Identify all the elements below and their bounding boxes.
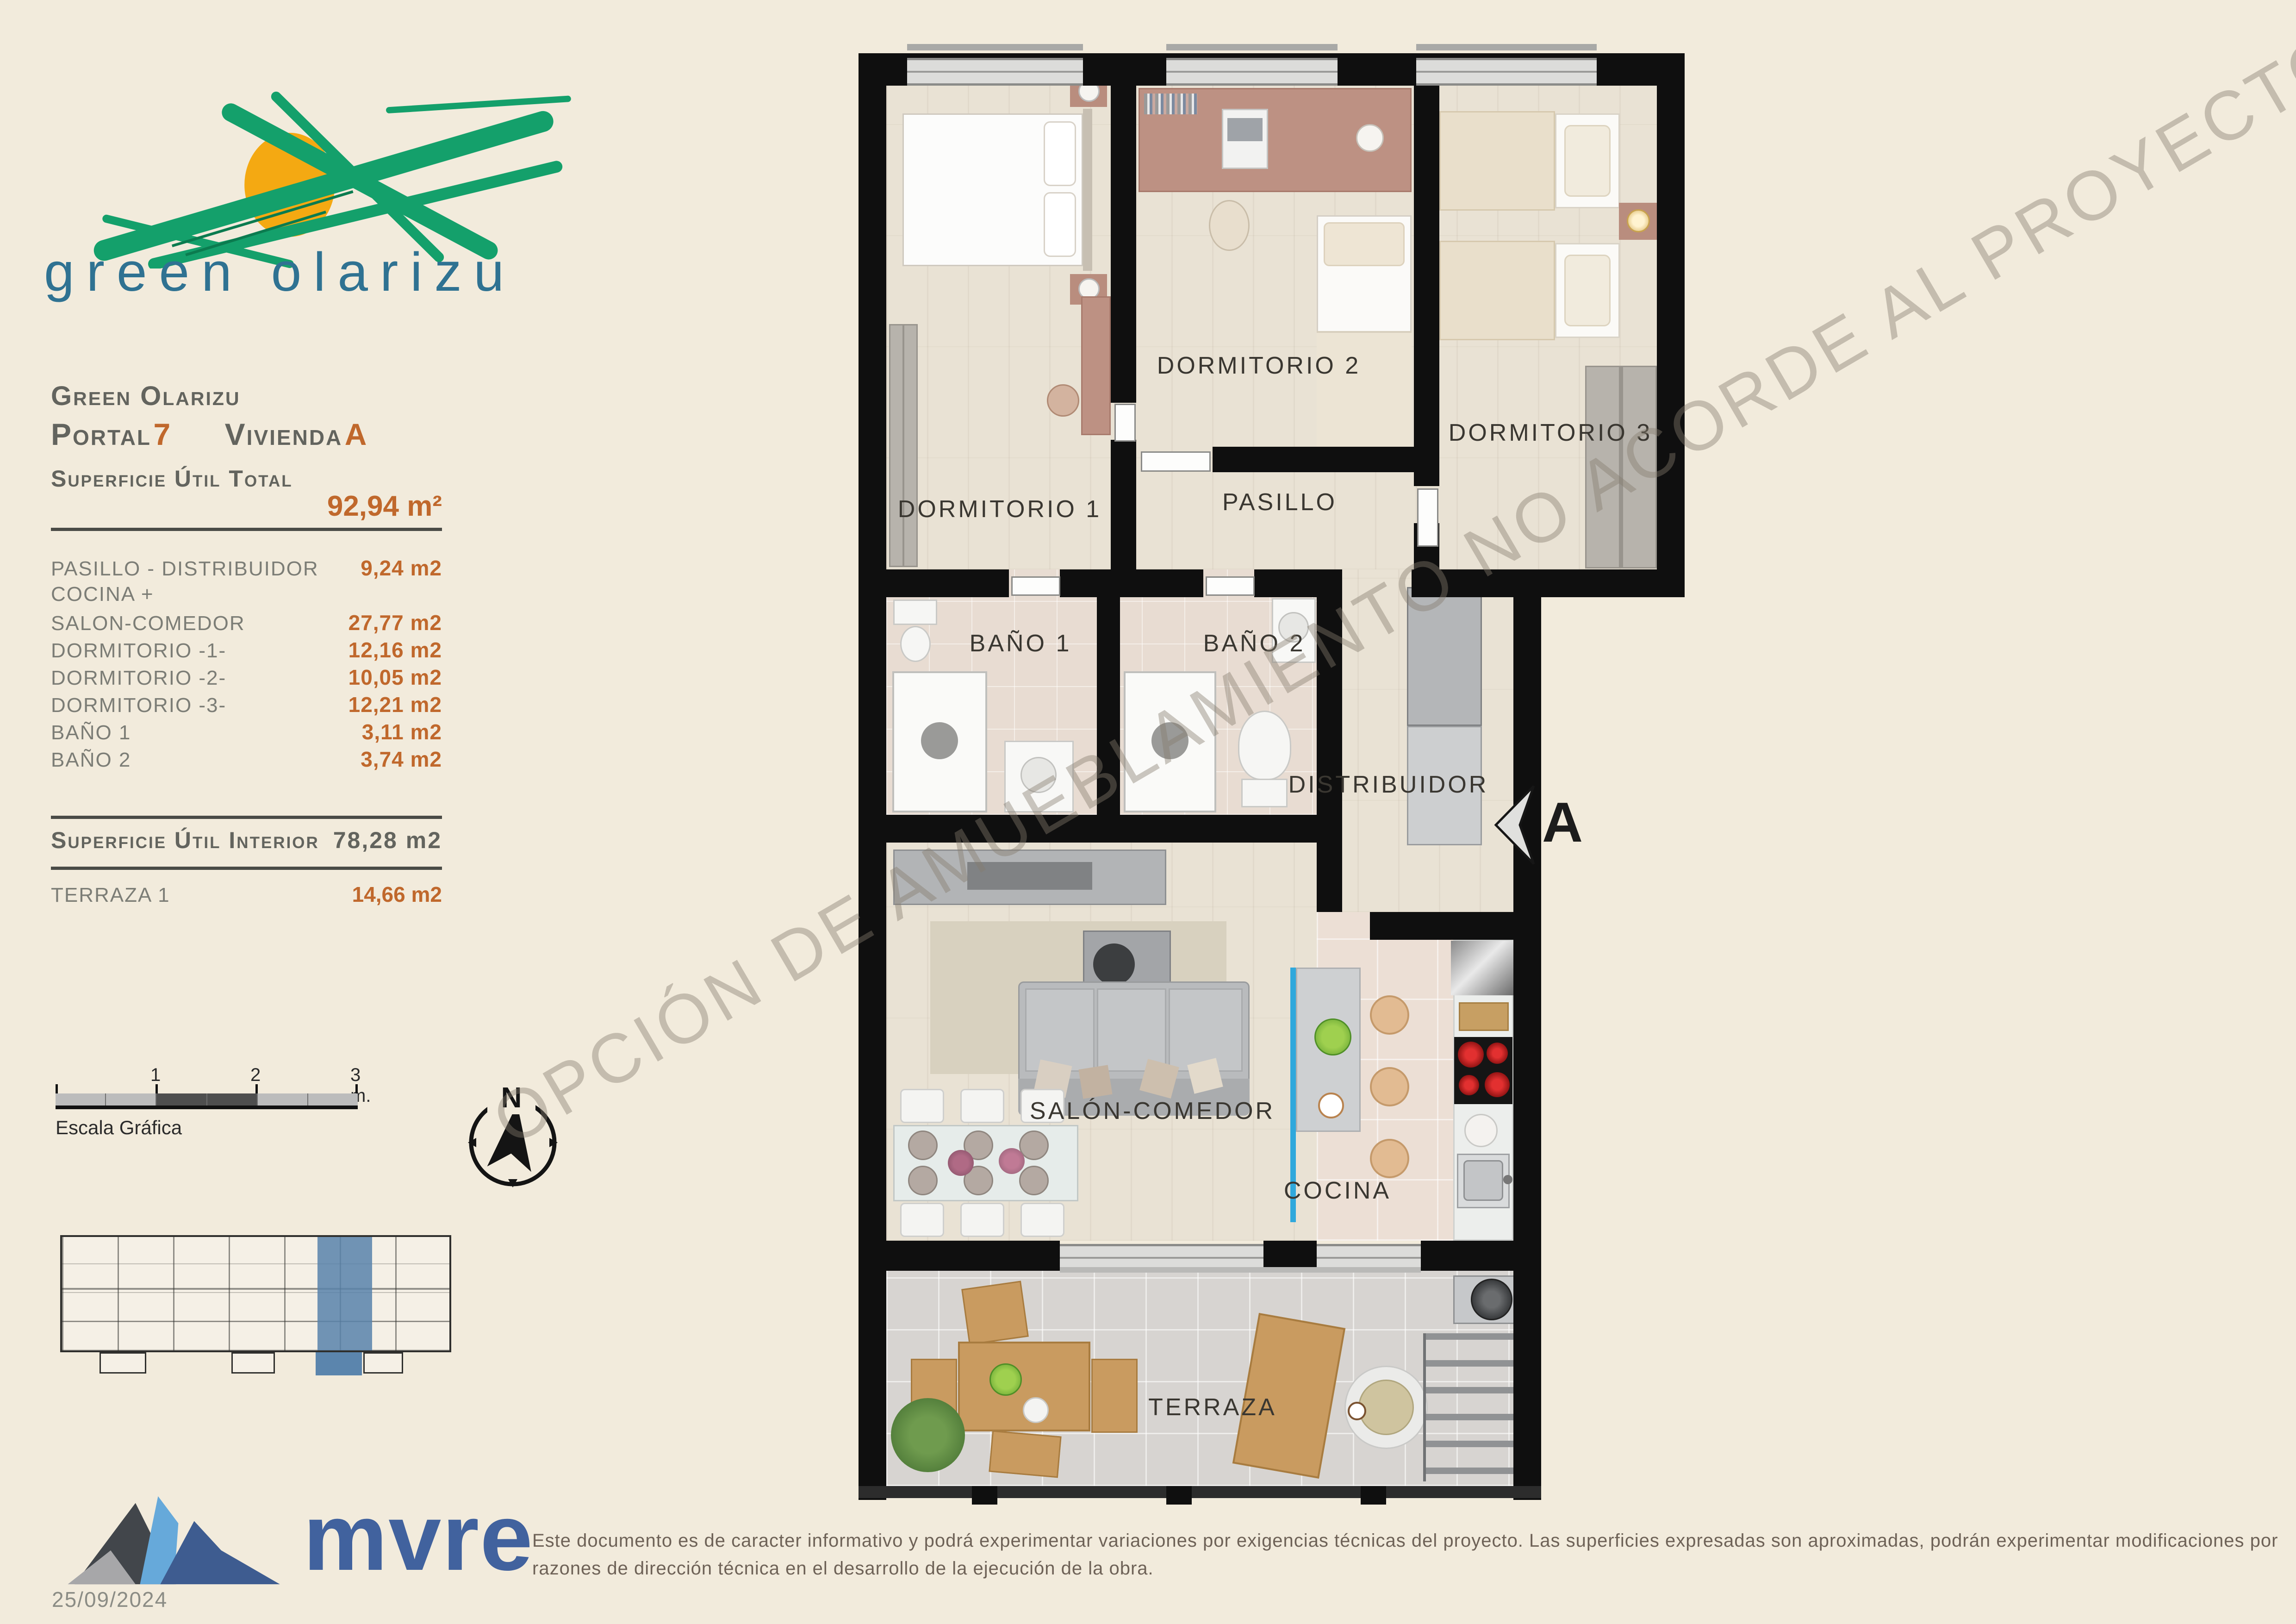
kitchen-sink-basin — [1463, 1160, 1503, 1201]
divider-2 — [51, 816, 442, 819]
divider-3 — [51, 867, 442, 870]
list-item: SALON-COMEDOR27,77 m2 — [51, 610, 442, 637]
overview-midline — [62, 1288, 449, 1290]
door-bano1 — [1011, 576, 1060, 596]
window-dormitorio1 — [907, 58, 1083, 86]
divider-1 — [51, 528, 442, 531]
terraza-label: TERRAZA 1 — [51, 884, 170, 907]
d2-books — [1144, 94, 1197, 114]
vivienda-label: Vivienda — [225, 417, 343, 451]
wall-pasillo-south-a — [859, 569, 1009, 597]
door-dormitorio2 — [1141, 451, 1211, 472]
list-item: BAÑO 23,74 m2 — [51, 747, 442, 774]
d2-pillow — [1324, 222, 1405, 266]
project-title: Green Olarizu — [51, 381, 241, 412]
label-salon-comedor: SALÓN-COMEDOR — [1030, 1097, 1275, 1125]
scale-baseline — [56, 1106, 358, 1109]
d2-lamp — [1356, 124, 1384, 152]
wall-distrib-cocina — [1370, 912, 1513, 940]
list-item: COCINA + — [51, 583, 442, 610]
window-dormitorio3 — [1416, 58, 1597, 86]
wall-terraza-north-a — [859, 1241, 1060, 1271]
total-surface-label: Superficie Útil Total — [51, 465, 293, 492]
kitchen-hood — [1451, 941, 1516, 995]
terrace-chair — [961, 1281, 1029, 1345]
washer-drum — [1471, 1279, 1512, 1320]
door-dormitorio3 — [1417, 488, 1438, 547]
terrace-chair — [1091, 1359, 1138, 1433]
d2-laptop-keys — [1227, 118, 1263, 141]
list-item: DORMITORIO -2-10,05 m2 — [51, 665, 442, 692]
scale-tick-2: 2 — [250, 1065, 261, 1086]
scale-tick-1: 1 — [150, 1065, 161, 1086]
d1-pillow — [1044, 121, 1076, 186]
mvre-logo-icon — [65, 1496, 305, 1587]
terraza-parapet-post — [972, 1486, 997, 1505]
d1-headboard — [1083, 109, 1092, 271]
d1-desk — [1081, 296, 1111, 435]
cutting-board — [1459, 1002, 1509, 1031]
bano1-sink-bowl — [1020, 757, 1057, 793]
terrace-plant — [891, 1398, 965, 1472]
label-dormitorio3: DORMITORIO 3 — [1449, 419, 1652, 447]
d3-bed2-blanket — [1439, 241, 1555, 340]
wall-pasillo-south-b — [1060, 569, 1203, 597]
section-marker-arrow-icon — [1494, 784, 1536, 866]
wall-d1-d2-a — [1111, 86, 1136, 403]
label-pasillo: PASILLO — [1222, 488, 1337, 516]
brand-logo-text: green olarizu — [44, 241, 516, 304]
d3-lamp — [1627, 209, 1650, 232]
terrace-chair — [989, 1430, 1061, 1478]
dining-chair — [960, 1089, 1004, 1123]
burner — [1485, 1072, 1510, 1097]
overview-stair — [100, 1352, 146, 1374]
scale-seg — [106, 1093, 156, 1106]
scale-seg — [207, 1093, 258, 1106]
highlighted-unit — [317, 1237, 372, 1350]
list-item: PASILLO - DISTRIBUIDOR9,24 m2 — [51, 556, 442, 583]
overview-stair — [231, 1352, 275, 1374]
bano1-toilet-tank — [893, 600, 937, 625]
terraza-parapet-post — [1166, 1486, 1192, 1505]
window-dormitorio2 — [1166, 58, 1338, 86]
bano1-shower-drain — [921, 722, 958, 759]
wall-d3-south — [1412, 569, 1685, 597]
wall-d1-d2-b — [1111, 440, 1136, 569]
terraza-parapet-post — [1361, 1486, 1386, 1505]
d1-wardrobe — [889, 324, 918, 567]
overview-midline — [62, 1321, 449, 1322]
d2-blanket — [1317, 331, 1412, 456]
wall-d2-south — [1213, 447, 1414, 472]
terraza-sill — [1060, 1267, 1421, 1273]
d2-chair — [1209, 200, 1250, 251]
section-marker-letter: A — [1542, 790, 1583, 855]
wall-terraza-post — [1263, 1241, 1317, 1271]
unit-title: Portal 7 Vivienda A — [51, 417, 454, 452]
d1-chair — [1047, 384, 1079, 417]
burner — [1487, 1043, 1508, 1064]
d3-wardrobe — [1585, 366, 1657, 568]
wall-terraza-north-b — [1421, 1241, 1541, 1271]
door-bano2 — [1206, 576, 1255, 596]
bar-stool — [1370, 1139, 1409, 1178]
wall-salon-distrib — [1317, 843, 1342, 912]
sofa-cushion — [1078, 1065, 1112, 1099]
door-dormitorio1 — [1114, 404, 1136, 442]
label-bano2: BAÑO 2 — [1203, 630, 1306, 657]
wall-banos-south — [859, 815, 1342, 843]
dining-chair — [900, 1089, 944, 1123]
bar-stool — [1370, 995, 1409, 1035]
d3-bed1-pillow — [1564, 125, 1611, 197]
compass-north-letter: N — [487, 1081, 535, 1114]
burner — [1458, 1042, 1484, 1068]
list-item: DORMITORIO -3-12,21 m2 — [51, 692, 442, 719]
burner — [1459, 1075, 1479, 1095]
document-canvas: green olarizu Green Olarizu Portal 7 Viv… — [0, 0, 2296, 1624]
balcony-rail — [1416, 44, 1597, 50]
wall-right-step — [1513, 569, 1541, 1500]
dining-chair — [1020, 1203, 1064, 1237]
list-item: DORMITORIO -1-12,16 m2 — [51, 637, 442, 665]
sofa-seat — [1025, 988, 1095, 1072]
dining-centerpiece — [948, 1150, 974, 1176]
terrace-cup — [1348, 1402, 1366, 1420]
vivienda-letter: A — [345, 417, 368, 451]
d3-bed1-blanket — [1439, 111, 1555, 211]
wall-d2-d3-a — [1414, 86, 1439, 486]
dining-place — [1019, 1166, 1049, 1195]
island-plate — [1314, 1018, 1351, 1056]
terrace-plate — [989, 1363, 1022, 1396]
building-overview — [60, 1235, 451, 1352]
bar-stool — [1370, 1067, 1409, 1106]
bano2-shower-drain — [1151, 722, 1188, 759]
balcony-rail — [907, 44, 1083, 50]
interior-surface-value: 78,28 m2 — [333, 827, 442, 854]
room-area-list: PASILLO - DISTRIBUIDOR9,24 m2 COCINA + S… — [51, 556, 442, 774]
scale-caption: Escala Gráfica — [56, 1117, 182, 1139]
dining-centerpiece — [999, 1148, 1025, 1174]
brand-logo — [32, 69, 583, 269]
interior-surface-label: Superficie Útil Interior — [51, 827, 319, 854]
brand-logo-icon — [32, 69, 583, 269]
kitchen-faucet — [1503, 1175, 1512, 1184]
label-bano1: BAÑO 1 — [970, 630, 1072, 657]
terrace-table — [958, 1342, 1090, 1431]
dining-place — [908, 1166, 938, 1195]
wall-left — [859, 53, 886, 1500]
interior-surface-row: Superficie Útil Interior 78,28 m2 — [51, 827, 442, 854]
scale-seg — [308, 1093, 358, 1106]
bano1-toilet-bowl — [900, 626, 931, 662]
balcony-rail — [1166, 44, 1338, 50]
terraza-parapet — [859, 1486, 1541, 1498]
bano2-toilet-tank — [1241, 779, 1288, 807]
label-cocina: COCINA — [1284, 1177, 1391, 1205]
portal-number: 7 — [153, 417, 172, 451]
island-coffee — [1318, 1093, 1344, 1118]
disclaimer-text: Este documento es de caracter informativ… — [532, 1527, 2282, 1582]
label-dormitorio2: DORMITORIO 2 — [1157, 352, 1361, 380]
coffee-table-plate — [1093, 943, 1135, 985]
d1-pillow — [1044, 192, 1076, 257]
wall-right-top — [1657, 53, 1685, 597]
label-terraza: TERRAZA — [1148, 1393, 1277, 1421]
bano2-toilet-bowl — [1238, 711, 1291, 780]
terraza-row: TERRAZA 1 14,66 m2 — [51, 882, 442, 907]
scale-seg — [258, 1093, 308, 1106]
mvre-logo-text: mvre — [303, 1490, 534, 1585]
terraza-value: 14,66 m2 — [352, 882, 442, 907]
sofa-seat — [1097, 988, 1166, 1072]
scale-seg — [156, 1093, 207, 1106]
dining-place — [908, 1131, 938, 1160]
tv-screen — [967, 862, 1092, 890]
graphic-scale: 1 2 3 m. Escala Gráfica — [56, 1065, 370, 1143]
scale-seg — [56, 1093, 106, 1106]
distrib-closet — [1407, 587, 1482, 726]
sofa-seat — [1169, 988, 1243, 1072]
dining-chair — [960, 1203, 1004, 1237]
total-surface-value: 92,94 m² — [51, 490, 442, 523]
date-text: 25/09/2024 — [52, 1587, 168, 1612]
wall-banos-mid — [1097, 597, 1120, 815]
d3-bed2-pillow — [1564, 255, 1611, 326]
salad-plate — [1464, 1114, 1498, 1147]
mvre-logo — [65, 1496, 305, 1587]
portal-label: Portal — [51, 417, 151, 451]
label-dormitorio1: DORMITORIO 1 — [898, 495, 1101, 523]
overview-stair — [363, 1352, 403, 1374]
terrace-plate-2 — [1023, 1397, 1049, 1423]
highlighted-unit-terrace — [316, 1352, 362, 1375]
scale-band — [56, 1093, 358, 1106]
wall-pasillo-south-c — [1254, 569, 1317, 597]
dining-chair — [900, 1203, 944, 1237]
list-item: BAÑO 13,11 m2 — [51, 719, 442, 747]
label-distribuidor: DISTRIBUIDOR — [1288, 771, 1489, 799]
terrace-round-table-wicker — [1358, 1380, 1414, 1435]
